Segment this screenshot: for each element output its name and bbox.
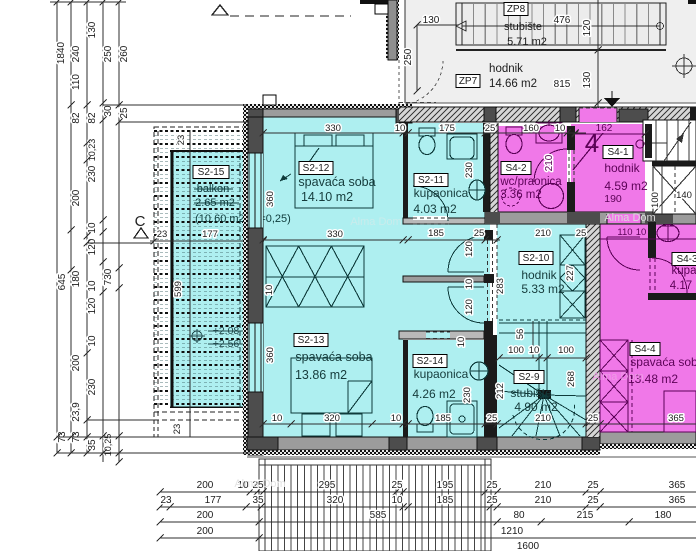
svg-text:10: 10 — [264, 285, 275, 296]
svg-text:23: 23 — [176, 135, 187, 146]
svg-text:10: 10 — [456, 337, 467, 348]
svg-text:82: 82 — [87, 112, 98, 124]
svg-text:200: 200 — [197, 510, 214, 521]
svg-text:365: 365 — [669, 480, 686, 491]
svg-text:25: 25 — [587, 495, 599, 506]
svg-text:210: 210 — [544, 154, 555, 171]
svg-text:110: 110 — [617, 227, 632, 238]
svg-text:80: 80 — [513, 510, 525, 521]
svg-text:S2-12: S2-12 — [303, 163, 330, 174]
svg-text:25: 25 — [485, 123, 496, 134]
svg-text:hodnik: hodnik — [604, 161, 640, 175]
svg-text:210: 210 — [535, 495, 552, 506]
svg-text:4.17: 4.17 — [670, 280, 692, 292]
svg-text:227: 227 — [565, 265, 576, 281]
svg-text:185: 185 — [428, 228, 444, 239]
svg-text:82: 82 — [71, 112, 82, 124]
svg-text:130: 130 — [87, 21, 98, 38]
svg-text:250: 250 — [103, 45, 114, 62]
svg-text:25: 25 — [486, 495, 498, 506]
svg-text:476: 476 — [554, 15, 571, 26]
svg-text:130: 130 — [582, 71, 593, 88]
svg-text:25: 25 — [474, 228, 485, 239]
svg-text:320: 320 — [327, 495, 344, 506]
svg-text:320: 320 — [324, 413, 340, 424]
svg-text:spavaća soba: spavaća soba — [295, 350, 372, 364]
svg-text:Alma Dom: Alma Dom — [234, 478, 285, 490]
svg-text:4.03 m2: 4.03 m2 — [413, 202, 457, 216]
svg-text:S2-13: S2-13 — [298, 335, 325, 346]
svg-text:162: 162 — [596, 123, 613, 134]
svg-text:5.71 m2: 5.71 m2 — [507, 36, 547, 48]
svg-text:14.10 m2: 14.10 m2 — [301, 190, 353, 204]
svg-text:230: 230 — [87, 165, 98, 182]
svg-text:10: 10 — [87, 280, 98, 292]
svg-text:10: 10 — [529, 345, 540, 356]
svg-text:815: 815 — [554, 79, 571, 90]
svg-text:645: 645 — [57, 273, 68, 290]
svg-text:215: 215 — [577, 510, 594, 521]
svg-text:10: 10 — [464, 279, 475, 290]
svg-text:5.33 m2: 5.33 m2 — [521, 282, 565, 296]
svg-text:kupa: kupa — [672, 265, 696, 277]
svg-text:25: 25 — [119, 107, 130, 119]
svg-text:S4-2: S4-2 — [505, 163, 527, 174]
svg-text:185: 185 — [437, 495, 454, 506]
svg-text:Alma Dom: Alma Dom — [350, 216, 401, 228]
svg-text:56: 56 — [515, 329, 526, 340]
svg-text:23: 23 — [160, 495, 172, 506]
svg-text:250: 250 — [403, 48, 414, 65]
svg-text:599: 599 — [173, 281, 184, 297]
svg-text:10: 10 — [272, 413, 283, 424]
svg-text:35: 35 — [87, 439, 98, 451]
svg-text:30: 30 — [103, 105, 114, 117]
svg-text:ZP7: ZP7 — [459, 76, 478, 87]
svg-text:10: 10 — [87, 222, 98, 234]
svg-text:S4-1: S4-1 — [607, 147, 629, 158]
svg-text:S2-10: S2-10 — [523, 253, 550, 264]
svg-text:240: 240 — [71, 45, 82, 62]
svg-text:212: 212 — [495, 383, 506, 399]
svg-text:1840: 1840 — [56, 41, 67, 64]
svg-text:hodnik: hodnik — [489, 63, 523, 75]
svg-text:110: 110 — [71, 74, 82, 90]
svg-text:200: 200 — [197, 480, 214, 491]
svg-text:kupaonica: kupaonica — [414, 367, 469, 381]
svg-text:365: 365 — [668, 413, 684, 424]
svg-text:160: 160 — [523, 123, 539, 134]
svg-text:365: 365 — [669, 495, 686, 506]
svg-text:13.86 m2: 13.86 m2 — [295, 368, 347, 382]
svg-text:140: 140 — [676, 190, 692, 201]
svg-text:130: 130 — [423, 15, 440, 26]
svg-text:730: 730 — [103, 268, 114, 285]
svg-text:120: 120 — [87, 297, 98, 314]
svg-text:268: 268 — [566, 371, 577, 387]
svg-text:230: 230 — [87, 378, 98, 395]
svg-text:stubište: stubište — [504, 21, 542, 33]
svg-text:10: 10 — [636, 227, 647, 238]
svg-text:hodnik: hodnik — [521, 268, 557, 282]
svg-text:S2-15: S2-15 — [198, 167, 225, 178]
svg-text:360: 360 — [265, 347, 276, 363]
svg-text:10: 10 — [555, 123, 566, 134]
svg-text:23: 23 — [157, 229, 168, 240]
svg-text:295: 295 — [319, 480, 336, 491]
svg-text:3.36 m2: 3.36 m2 — [500, 189, 542, 201]
svg-text:Alma Dom: Alma Dom — [604, 212, 655, 224]
svg-text:S2-9: S2-9 — [518, 372, 540, 383]
svg-text:360: 360 — [265, 191, 276, 207]
svg-text:210: 210 — [535, 413, 551, 424]
svg-text:230: 230 — [464, 162, 475, 178]
svg-text:10: 10 — [391, 413, 402, 424]
svg-text:S2-11: S2-11 — [418, 175, 444, 186]
svg-text:120: 120 — [464, 299, 475, 315]
svg-text:23: 23 — [172, 424, 183, 435]
svg-text:100: 100 — [558, 345, 574, 356]
svg-text:25: 25 — [576, 228, 587, 239]
svg-text:260: 260 — [119, 45, 130, 62]
svg-text:190: 190 — [604, 193, 622, 205]
svg-text:S4-3: S4-3 — [676, 254, 696, 265]
svg-text:35: 35 — [252, 495, 264, 506]
svg-text:200: 200 — [197, 526, 214, 537]
svg-text:330: 330 — [325, 123, 341, 134]
svg-text:10: 10 — [395, 123, 406, 134]
svg-text:C: C — [135, 213, 146, 230]
svg-text:Alma Dom: Alma Dom — [592, 371, 643, 383]
svg-text:spavaća soba: spavaća soba — [298, 175, 375, 189]
svg-text:spavaća sob: spavaća sob — [630, 355, 696, 369]
svg-text:100: 100 — [650, 192, 661, 208]
svg-text:100: 100 — [508, 345, 524, 356]
svg-text:195: 195 — [437, 480, 454, 491]
svg-text:177: 177 — [202, 229, 218, 240]
svg-text:330: 330 — [327, 229, 343, 240]
svg-text:14.66 m2: 14.66 m2 — [489, 78, 537, 90]
svg-text:200: 200 — [71, 189, 82, 206]
svg-text:stubište: stubište — [510, 386, 552, 400]
svg-text:4.26 m2: 4.26 m2 — [412, 387, 456, 401]
svg-text:S2-14: S2-14 — [417, 356, 444, 367]
svg-text:283: 283 — [495, 278, 506, 294]
svg-text:S4-4: S4-4 — [634, 344, 656, 355]
svg-text:25: 25 — [588, 413, 599, 424]
svg-text:120: 120 — [464, 241, 475, 257]
svg-text:25: 25 — [587, 480, 599, 491]
svg-text:120: 120 — [582, 19, 593, 36]
svg-text:200: 200 — [71, 354, 82, 371]
svg-text:kupaonica: kupaonica — [414, 186, 469, 200]
svg-text:25: 25 — [391, 480, 403, 491]
svg-text:180: 180 — [655, 510, 672, 521]
svg-text:ZP8: ZP8 — [507, 4, 526, 15]
svg-text:585: 585 — [370, 510, 387, 521]
svg-text:177: 177 — [205, 495, 222, 506]
svg-text:210: 210 — [535, 480, 552, 491]
svg-text:180: 180 — [71, 270, 82, 287]
svg-text:185: 185 — [435, 413, 451, 424]
svg-text:4.59 m2: 4.59 m2 — [604, 179, 648, 193]
svg-text:1600: 1600 — [517, 541, 540, 551]
svg-text:23,9: 23,9 — [71, 402, 82, 422]
svg-text:25: 25 — [486, 480, 498, 491]
svg-text:210: 210 — [535, 228, 551, 239]
svg-text:10: 10 — [391, 495, 403, 506]
svg-text:1210: 1210 — [501, 526, 524, 537]
svg-text:4.90 m2: 4.90 m2 — [514, 400, 558, 414]
svg-text:175: 175 — [439, 123, 455, 134]
svg-text:wc/praonica: wc/praonica — [499, 176, 562, 188]
svg-text:10: 10 — [87, 335, 98, 347]
svg-text:230: 230 — [462, 387, 473, 403]
svg-text:25: 25 — [487, 413, 498, 424]
